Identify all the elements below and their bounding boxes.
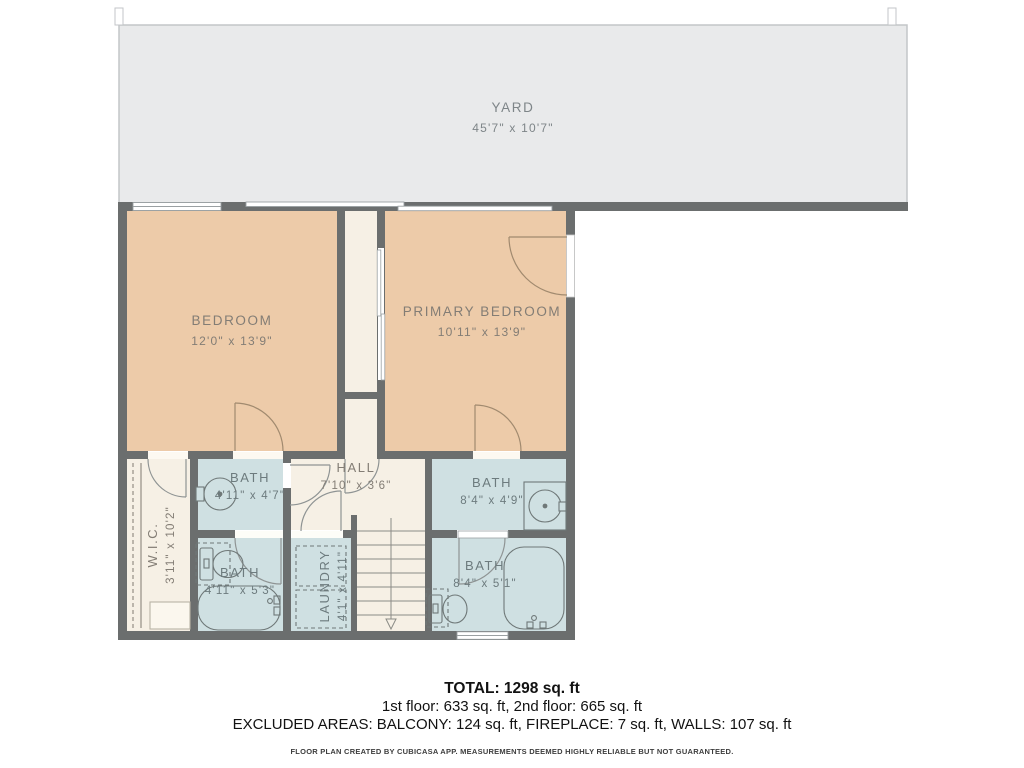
bath-top-right-floor <box>432 459 566 530</box>
wall-mid-seg1 <box>118 451 148 459</box>
wall-left <box>118 202 127 640</box>
disclaimer-text: FLOOR PLAN CREATED BY CUBICASA APP. MEAS… <box>0 747 1024 756</box>
wall-baths-right-seg2 <box>508 530 566 538</box>
door-gap-balcony <box>567 235 575 297</box>
total-area-text: TOTAL: 1298 sq. ft <box>0 680 1024 698</box>
door-gap-bath-bottom-right <box>458 531 508 538</box>
yard-corner-tick-right <box>888 8 896 25</box>
yard-corner-tick-left <box>115 8 123 25</box>
wall-mid-seg3 <box>283 451 345 459</box>
floorplan-page: { "rooms": { "yard": {"name": "YARD", "d… <box>0 0 1024 768</box>
wall-stairs-left <box>351 515 357 640</box>
sliding-door-primary <box>377 248 385 380</box>
closet-strip-floor <box>345 211 377 459</box>
wall-wic-bath <box>190 459 198 640</box>
wall-strip-divider <box>337 392 385 399</box>
wall-bedroom-strip <box>337 211 345 459</box>
yard-area <box>115 8 907 205</box>
opening-strip-hall <box>345 452 377 459</box>
floor-areas-text: 1st floor: 633 sq. ft, 2nd floor: 665 sq… <box>0 698 1024 716</box>
wall-baths-right-seg1 <box>432 530 457 538</box>
bath-bottom-left-floor <box>198 538 283 631</box>
door-gap-wic <box>148 452 188 459</box>
bedroom-floor <box>127 211 337 451</box>
wall-mid-seg5 <box>520 451 575 459</box>
excluded-areas-text: EXCLUDED AREAS: BALCONY: 124 sq. ft, FIR… <box>0 716 1024 734</box>
door-gap-primary-bath <box>473 452 520 459</box>
wall-bath-hall <box>283 488 291 640</box>
bath-top-left-floor <box>198 459 283 530</box>
door-gap-bath-bottom-left <box>235 531 283 538</box>
area-summary: TOTAL: 1298 sq. ft 1st floor: 633 sq. ft… <box>0 680 1024 734</box>
door-gap-bath-top-left <box>284 463 290 488</box>
door-gap-bedroom <box>233 452 283 459</box>
floorplan-canvas: YARD 45'7" x 10'7" BEDROOM 12'0" x 13'9"… <box>0 0 1024 768</box>
bath-bottom-right-floor <box>432 538 566 631</box>
wall-mid-seg2 <box>188 451 233 459</box>
window-bedroom-top <box>133 203 221 211</box>
door-gap-laundry <box>292 531 343 538</box>
wall-bath-hall-stub <box>283 459 291 463</box>
laundry-floor <box>291 538 351 631</box>
window-bath-bottom <box>457 632 508 640</box>
wall-baths-left-seg <box>190 530 235 538</box>
floorplan-drawing <box>0 0 1024 768</box>
